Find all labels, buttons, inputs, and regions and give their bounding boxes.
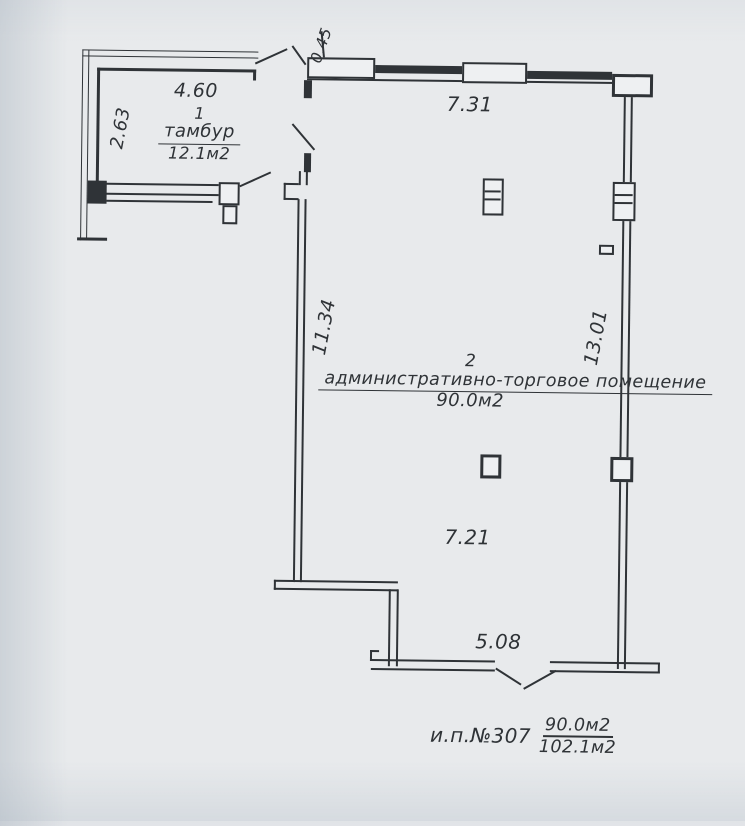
room-main-label: 2 административно-торговое помещение 90.…	[318, 351, 623, 413]
vestibule-pier-right	[218, 182, 239, 205]
dim-top-length: 7.31	[447, 94, 493, 116]
right-wall-bracket	[599, 245, 614, 255]
entry-door-leaf-left	[255, 48, 288, 64]
side-door-leaf	[292, 123, 315, 150]
left-wall-notch	[284, 183, 299, 200]
step-wall-horizontal	[274, 580, 398, 592]
column-free-upper	[482, 178, 503, 215]
column-free-upper-divider-2	[485, 198, 501, 200]
unit-number: и.п.№307	[430, 724, 531, 746]
room-vestibule-name: тамбур	[158, 122, 241, 145]
unit-area-main: 90.0м2	[545, 716, 611, 735]
dim-left-length: 11.34	[310, 298, 340, 357]
step-wall-vertical	[388, 589, 399, 666]
bottom-wall-left-tick-h	[370, 650, 379, 652]
bottom-wall-right-cap	[658, 663, 660, 674]
column-right-upper-divider-2	[615, 202, 633, 204]
corner-pier-top-right	[612, 74, 653, 97]
dim-vestibule-width: 4.60	[174, 82, 218, 102]
room-main-area: 90.0м2	[318, 391, 622, 414]
dim-inner-width: 7.21	[444, 527, 490, 549]
step-wall-cap	[274, 580, 276, 590]
left-wall-upper	[299, 171, 308, 185]
vestibule-wall-bottom	[89, 183, 220, 197]
vestibule-inner-wall-return	[253, 70, 256, 81]
left-wall-top-pier	[304, 153, 311, 172]
room-vestibule-area: 12.1м2	[151, 144, 247, 162]
bottom-wall-left	[371, 659, 495, 672]
vestibule-door-leaf	[239, 171, 271, 187]
vestibule-outer-wall-top	[82, 49, 258, 58]
bottom-wall-right	[550, 661, 660, 673]
vestibule-outer-wall-left	[80, 49, 89, 240]
column-free-upper-divider-1	[485, 190, 501, 192]
left-wall	[293, 199, 307, 582]
column-free-lower	[480, 454, 501, 478]
bottom-door-leaf-left	[495, 668, 521, 686]
floor-plan: 4.60 2.63 0.45 7.31 11.34 13.01 7.21 5.0…	[0, 0, 745, 826]
vestibule-inner-wall-top	[97, 68, 256, 73]
top-wall-start-pier	[304, 80, 312, 98]
dim-bottom-width: 5.08	[475, 631, 521, 653]
dim-vestibule-depth: 2.63	[107, 101, 135, 156]
unit-annotation: и.п.№307 90.0м2 102.1м2	[430, 715, 617, 758]
unit-area-fraction: 90.0м2 102.1м2	[539, 716, 617, 757]
vestibule-wall-endcap	[77, 237, 107, 240]
entry-door-leaf-right	[292, 45, 307, 65]
bottom-door-leaf-right	[523, 670, 556, 690]
vestibule-inner-wall-left	[96, 68, 100, 185]
unit-area-total: 102.1м2	[539, 738, 616, 757]
top-wall-segment-1	[375, 65, 462, 74]
window-2	[462, 62, 527, 84]
vestibule-pier-left	[88, 181, 107, 204]
column-right-lower	[610, 457, 633, 482]
room-vestibule-label: 1 тамбур 12.1м2	[151, 105, 248, 162]
vestibule-pier-right-step	[222, 205, 237, 224]
column-right-upper-divider-1	[615, 194, 633, 196]
vestibule-step-line	[107, 200, 213, 203]
top-wall-segment-2	[527, 71, 612, 80]
